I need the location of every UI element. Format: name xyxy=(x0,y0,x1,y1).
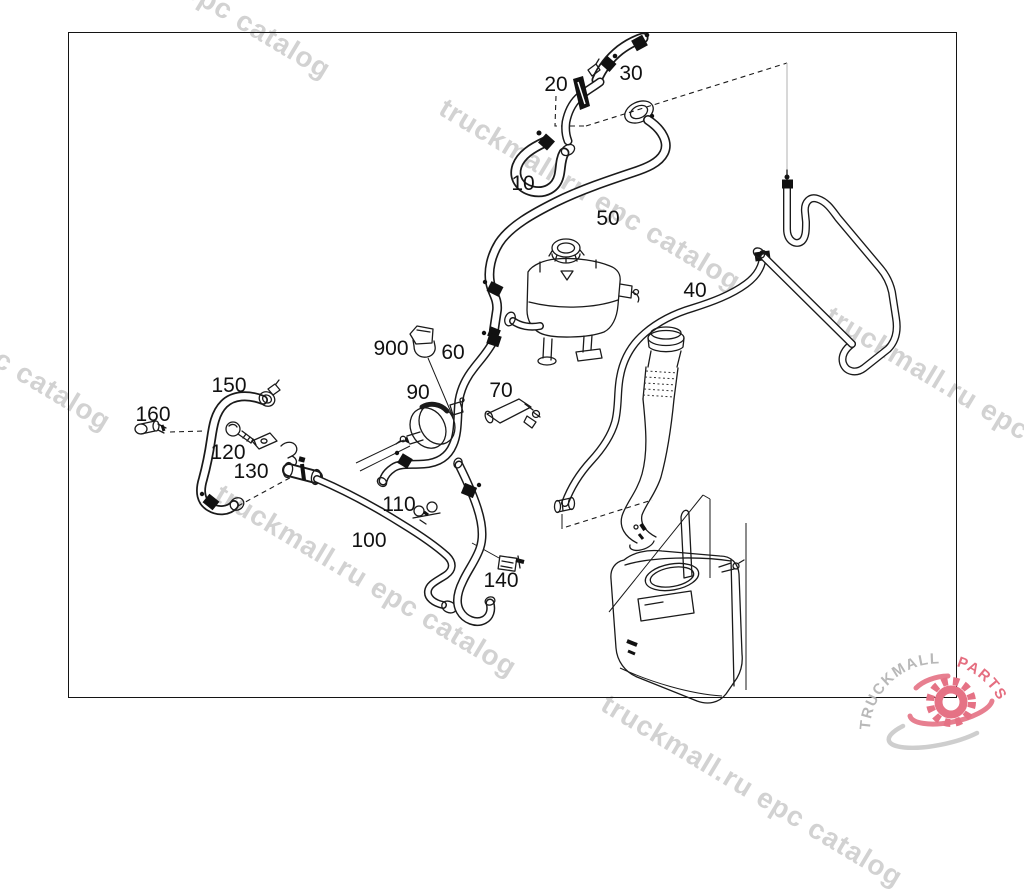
callout-30: 30 xyxy=(619,62,642,85)
pipe-20 xyxy=(566,59,600,141)
corrugated-neck xyxy=(643,367,678,399)
clip-900 xyxy=(410,326,435,357)
reservoir-tank xyxy=(611,541,744,703)
callout-160: 160 xyxy=(135,403,170,426)
parts-diagram: 10 20 30 40 50 60 70 90 100 110 120 130 … xyxy=(0,0,1024,750)
callout-110: 110 xyxy=(382,493,415,516)
right-pipe-assembly xyxy=(752,170,897,371)
callout-10: 10 xyxy=(511,172,534,195)
bracket-70 xyxy=(484,399,540,428)
clip-110 xyxy=(413,502,440,524)
reservoir xyxy=(609,327,746,703)
return-hose xyxy=(453,457,497,622)
callout-40: 40 xyxy=(683,279,706,302)
callout-50: 50 xyxy=(596,207,619,230)
expansion-tank xyxy=(503,239,639,365)
callout-150: 150 xyxy=(211,374,246,397)
callout-140: 140 xyxy=(483,569,518,592)
callout-100: 100 xyxy=(351,529,386,552)
callout-60: 60 xyxy=(441,341,464,364)
callout-130: 130 xyxy=(233,460,268,483)
callout-900: 900 xyxy=(373,337,408,360)
callout-70: 70 xyxy=(489,379,512,402)
callout-90: 90 xyxy=(406,381,429,404)
callout-20: 20 xyxy=(544,73,567,96)
